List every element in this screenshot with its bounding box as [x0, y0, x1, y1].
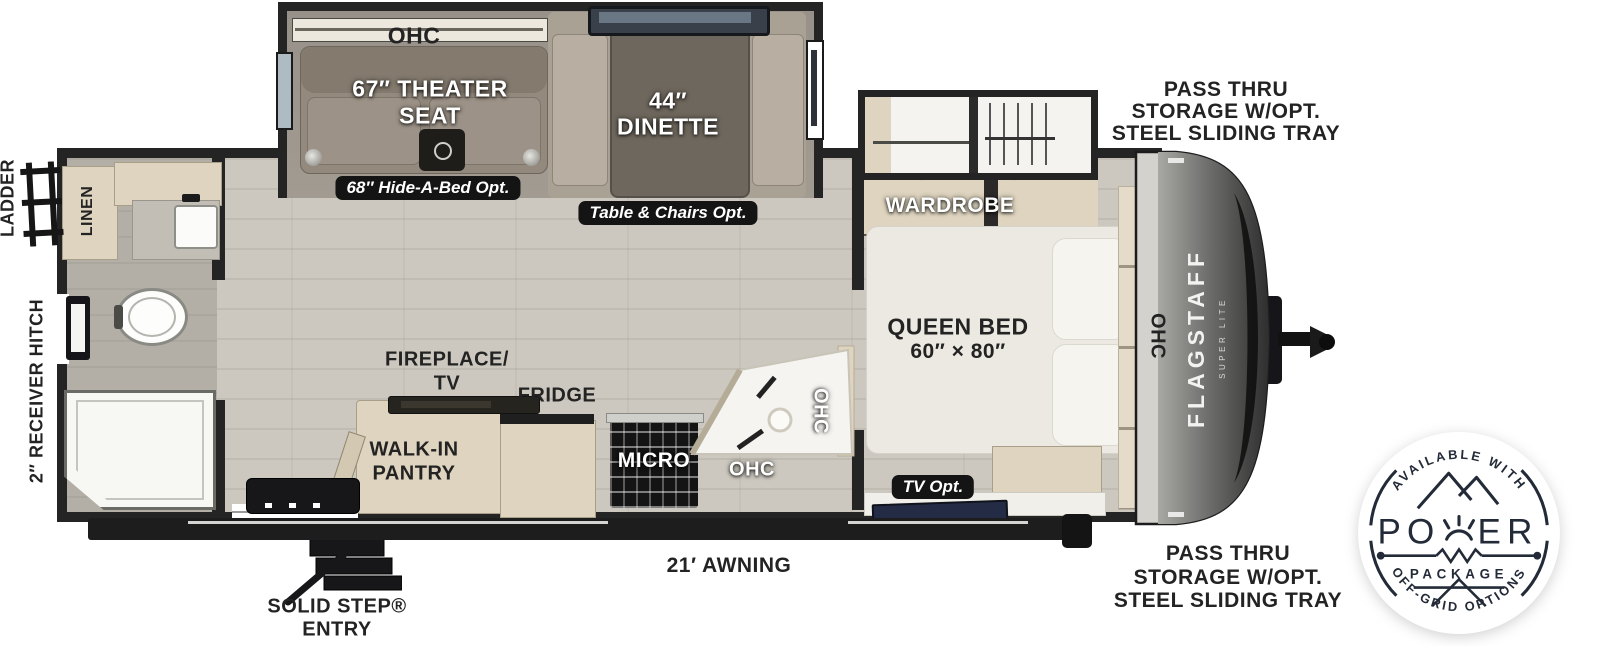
theater-seat-label-2: SEAT	[399, 103, 461, 130]
wardrobe-label: WARDROBE	[886, 194, 1015, 218]
tray-rail	[1003, 103, 1005, 165]
storage-rail	[873, 141, 969, 144]
solid-step-label-1: SOLID STEP®	[267, 596, 406, 619]
fireplace-screen	[401, 401, 491, 408]
bed-ohc-label: OHC	[1146, 313, 1169, 359]
cap-latch-top	[1168, 158, 1184, 163]
receiver-hitch-label: 2″ RECEIVER HITCH	[27, 299, 48, 483]
linen-label: LINEN	[79, 186, 97, 237]
skylight-glass	[599, 12, 751, 23]
fridge	[500, 420, 596, 518]
theater-cupholder-left	[305, 149, 322, 166]
tray-rail	[1031, 103, 1033, 165]
slideout-window-left	[276, 52, 293, 130]
fridge-top	[500, 414, 594, 424]
griddle-knob	[289, 503, 296, 508]
tray-rail	[1017, 103, 1019, 165]
bathroom-sink	[174, 205, 218, 249]
awning-end-bracket	[1062, 514, 1092, 548]
pass-thru-top-label-1: PASS THRU	[1164, 78, 1288, 102]
queen-bed-label-2: 60″ × 80″	[910, 340, 1005, 364]
corner-counter	[688, 338, 864, 516]
badge-word-er: ER	[1478, 512, 1539, 551]
queen-bed-label-1: QUEEN BED	[887, 314, 1028, 341]
awning-bar	[88, 518, 1088, 540]
power-package-badge: AVAILABLE WITH PO ER PACKAGE OFF-GRID OP…	[1356, 430, 1562, 636]
pass-thru-bottom-label-3: STEEL SLIDING TRAY	[1114, 589, 1342, 613]
dinette-label-2: DINETTE	[617, 114, 719, 141]
pass-thru-bottom-label-2: STORAGE W/OPT.	[1134, 566, 1323, 590]
pass-thru-top-label-2: STORAGE W/OPT.	[1132, 100, 1321, 124]
console-cupholder-icon	[434, 142, 452, 160]
solid-step-label-2: ENTRY	[302, 619, 372, 642]
pantry-label-1: WALK-IN	[369, 439, 458, 462]
griddle-knob	[265, 503, 272, 508]
bed-pillow-bottom	[1052, 344, 1128, 446]
micro-label: MICRO	[618, 449, 691, 473]
ladder-icon	[18, 161, 66, 247]
tray-rail-cross	[985, 137, 1055, 140]
theater-seat-label-1: 67″ THEATER	[352, 76, 507, 103]
theater-cupholder-right	[523, 149, 540, 166]
awning-label: 21′ AWNING	[667, 554, 792, 578]
griddle-knob	[313, 503, 320, 508]
storage-divider	[969, 97, 978, 173]
shower-pan	[76, 400, 204, 500]
tray-rail	[989, 103, 991, 165]
tv-option-badge: TV Opt.	[892, 475, 974, 499]
dinette-label-1: 44″	[649, 88, 687, 115]
fridge-label: FRIDGE	[518, 385, 597, 408]
brand-name: FLAGSTAFF	[1183, 248, 1209, 428]
pass-thru-storage-box	[858, 90, 1098, 180]
step-3	[324, 576, 402, 590]
ohc-top-label: OHC	[388, 23, 441, 50]
toilet-bowl	[128, 297, 176, 337]
ladder-label: LADDER	[0, 159, 19, 237]
ohc-kitchen-label: OHC	[729, 459, 775, 482]
hide-a-bed-option-badge: 68″ Hide-A-Bed Opt.	[335, 176, 520, 200]
cap-latch-bottom	[1168, 512, 1184, 517]
floorplan-canvas: OHC 67″ THEATER SEAT 44″ DINETTE 68″ Hid…	[0, 0, 1600, 646]
pantry-label-2: PANTRY	[373, 463, 456, 486]
outside-griddle	[246, 478, 360, 514]
bed-pillow-top	[1052, 238, 1128, 340]
dinette-bench-left	[552, 34, 608, 186]
badge-word-po: PO	[1378, 512, 1441, 551]
fireplace-tv-label-1: FIREPLACE/	[385, 349, 509, 372]
dinette-skylight	[588, 6, 770, 36]
hitch-tongue	[1278, 332, 1312, 346]
hitch-ball	[1319, 334, 1335, 350]
kitchen-sink-icon	[769, 409, 791, 431]
bathroom-faucet-icon	[182, 194, 200, 202]
pass-thru-bottom-label-1: PASS THRU	[1166, 542, 1290, 566]
storage-wood-shelf	[865, 97, 891, 173]
toilet-hinge	[114, 305, 123, 329]
slideout-window-right-pane	[811, 50, 817, 126]
awning-highlight	[848, 521, 1028, 524]
dinette-bench-right	[752, 34, 804, 186]
bathroom-window-pane	[71, 304, 85, 352]
brand-subtitle: SUPER LITE	[1218, 297, 1227, 379]
tray-rail	[1045, 103, 1047, 165]
table-chairs-option-badge: Table & Chairs Opt.	[578, 201, 757, 225]
ohc-kitchen-vertical-label: OHC	[809, 388, 832, 434]
fireplace-tv-label-2: TV	[434, 373, 461, 396]
awning-highlight	[188, 521, 608, 524]
theater-console	[419, 129, 465, 171]
